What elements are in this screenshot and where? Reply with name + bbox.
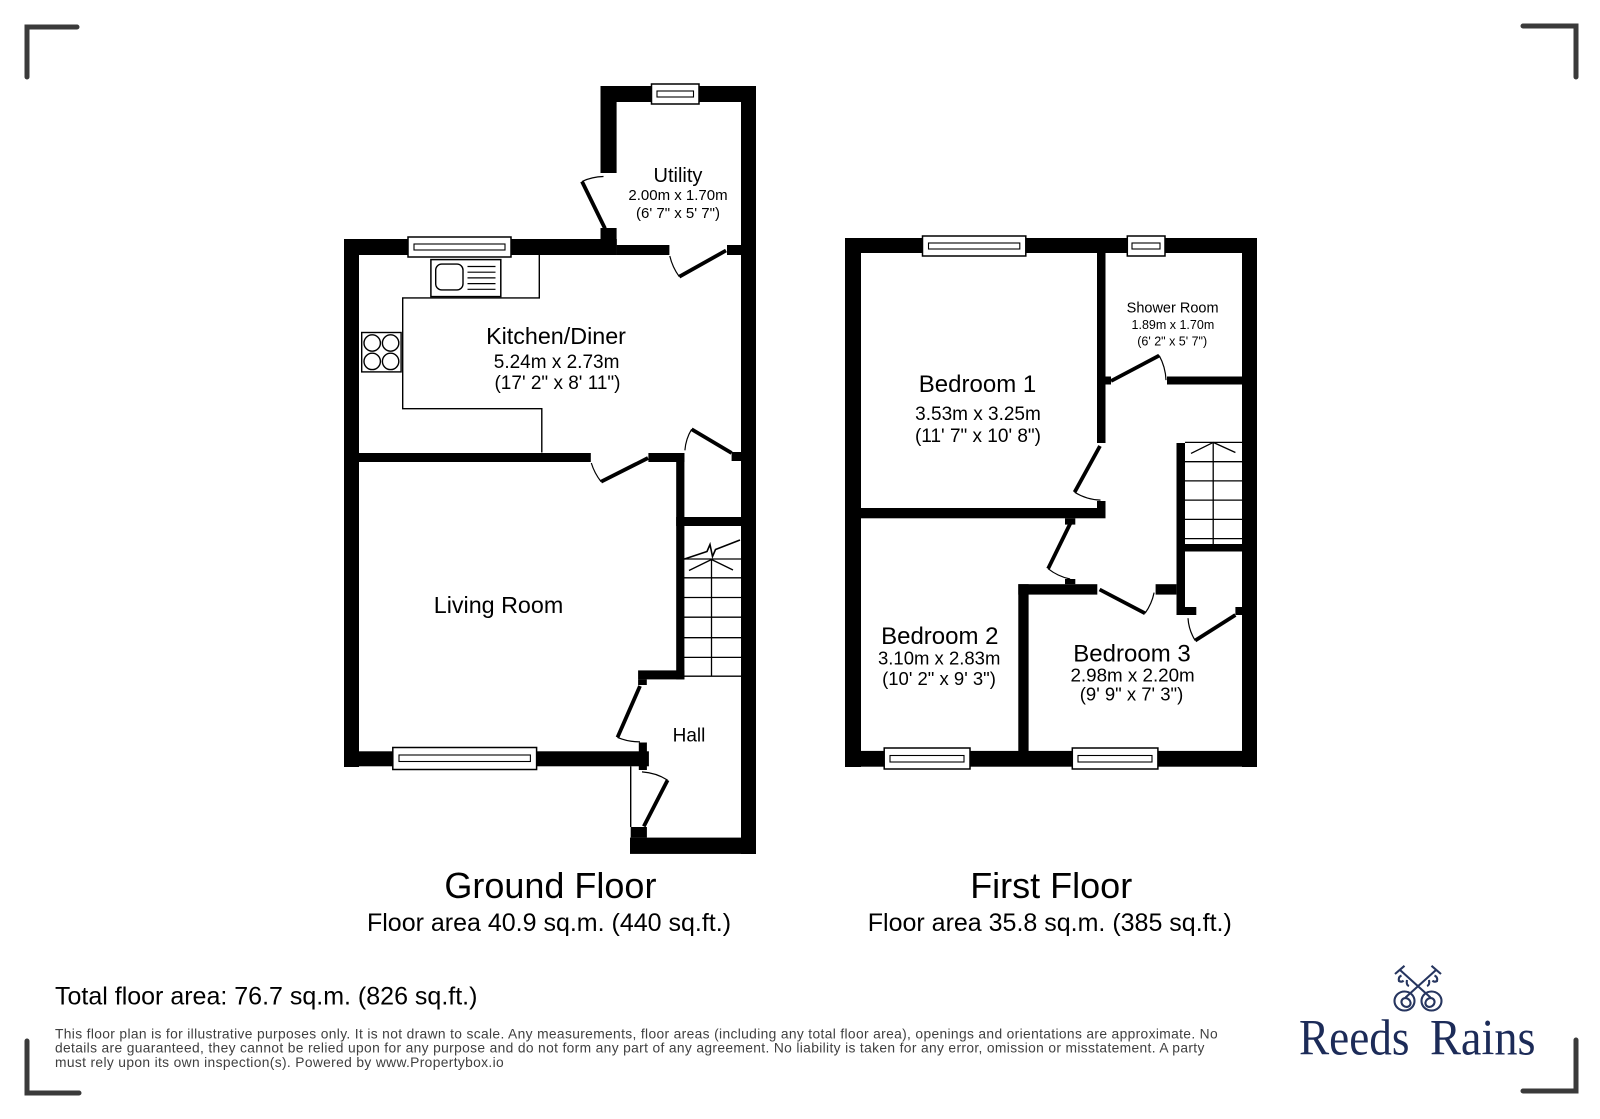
svg-text:Total floor area: 76.7 sq.m. (: Total floor area: 76.7 sq.m. (826 sq.ft.… — [55, 983, 477, 1011]
svg-text:Bedroom 3: Bedroom 3 — [1073, 641, 1190, 668]
svg-text:Utility: Utility — [654, 165, 703, 187]
svg-text:Rains: Rains — [1430, 1010, 1536, 1066]
svg-text:2.98m x 2.20m: 2.98m x 2.20m — [1070, 665, 1194, 686]
svg-text:(6' 7" x 5' 7"): (6' 7" x 5' 7") — [636, 205, 720, 222]
svg-text:First Floor: First Floor — [970, 865, 1132, 906]
svg-text:Floor area 35.8 sq.m. (385 sq.: Floor area 35.8 sq.m. (385 sq.ft.) — [868, 909, 1232, 937]
svg-text:3.10m x 2.83m: 3.10m x 2.83m — [878, 648, 1000, 669]
svg-text:Reeds: Reeds — [1299, 1010, 1410, 1066]
svg-text:Bedroom 1: Bedroom 1 — [919, 371, 1036, 398]
svg-text:Bedroom 2: Bedroom 2 — [881, 623, 998, 650]
svg-text:Living Room: Living Room — [434, 592, 564, 618]
svg-text:(10' 2" x 9' 3"): (10' 2" x 9' 3") — [882, 668, 996, 689]
svg-text:(6' 2" x 5' 7"): (6' 2" x 5' 7") — [1137, 335, 1207, 349]
svg-text:3.53m x 3.25m: 3.53m x 3.25m — [915, 404, 1041, 425]
svg-text:Hall: Hall — [673, 726, 706, 747]
svg-text:Ground Floor: Ground Floor — [444, 865, 656, 906]
svg-text:(17' 2" x 8' 11"): (17' 2" x 8' 11") — [494, 373, 620, 394]
svg-text:1.89m x 1.70m: 1.89m x 1.70m — [1132, 318, 1215, 332]
svg-text:5.24m x 2.73m: 5.24m x 2.73m — [494, 352, 620, 373]
svg-text:details are guaranteed, they c: details are guaranteed, they cannot be r… — [55, 1041, 1205, 1056]
svg-text:Floor area 40.9 sq.m. (440 sq.: Floor area 40.9 sq.m. (440 sq.ft.) — [367, 909, 731, 937]
svg-text:Shower Room: Shower Room — [1127, 301, 1219, 317]
svg-text:Kitchen/Diner: Kitchen/Diner — [486, 323, 626, 349]
svg-text:(9' 9" x 7' 3"): (9' 9" x 7' 3") — [1080, 684, 1183, 705]
svg-text:This floor plan is for illustr: This floor plan is for illustrative purp… — [55, 1026, 1218, 1041]
svg-text:2.00m x 1.70m: 2.00m x 1.70m — [628, 187, 727, 204]
svg-text:(11' 7" x 10' 8"): (11' 7" x 10' 8") — [915, 426, 1041, 447]
svg-text:must rely upon its own inspect: must rely upon its own inspection(s). Po… — [55, 1055, 504, 1070]
